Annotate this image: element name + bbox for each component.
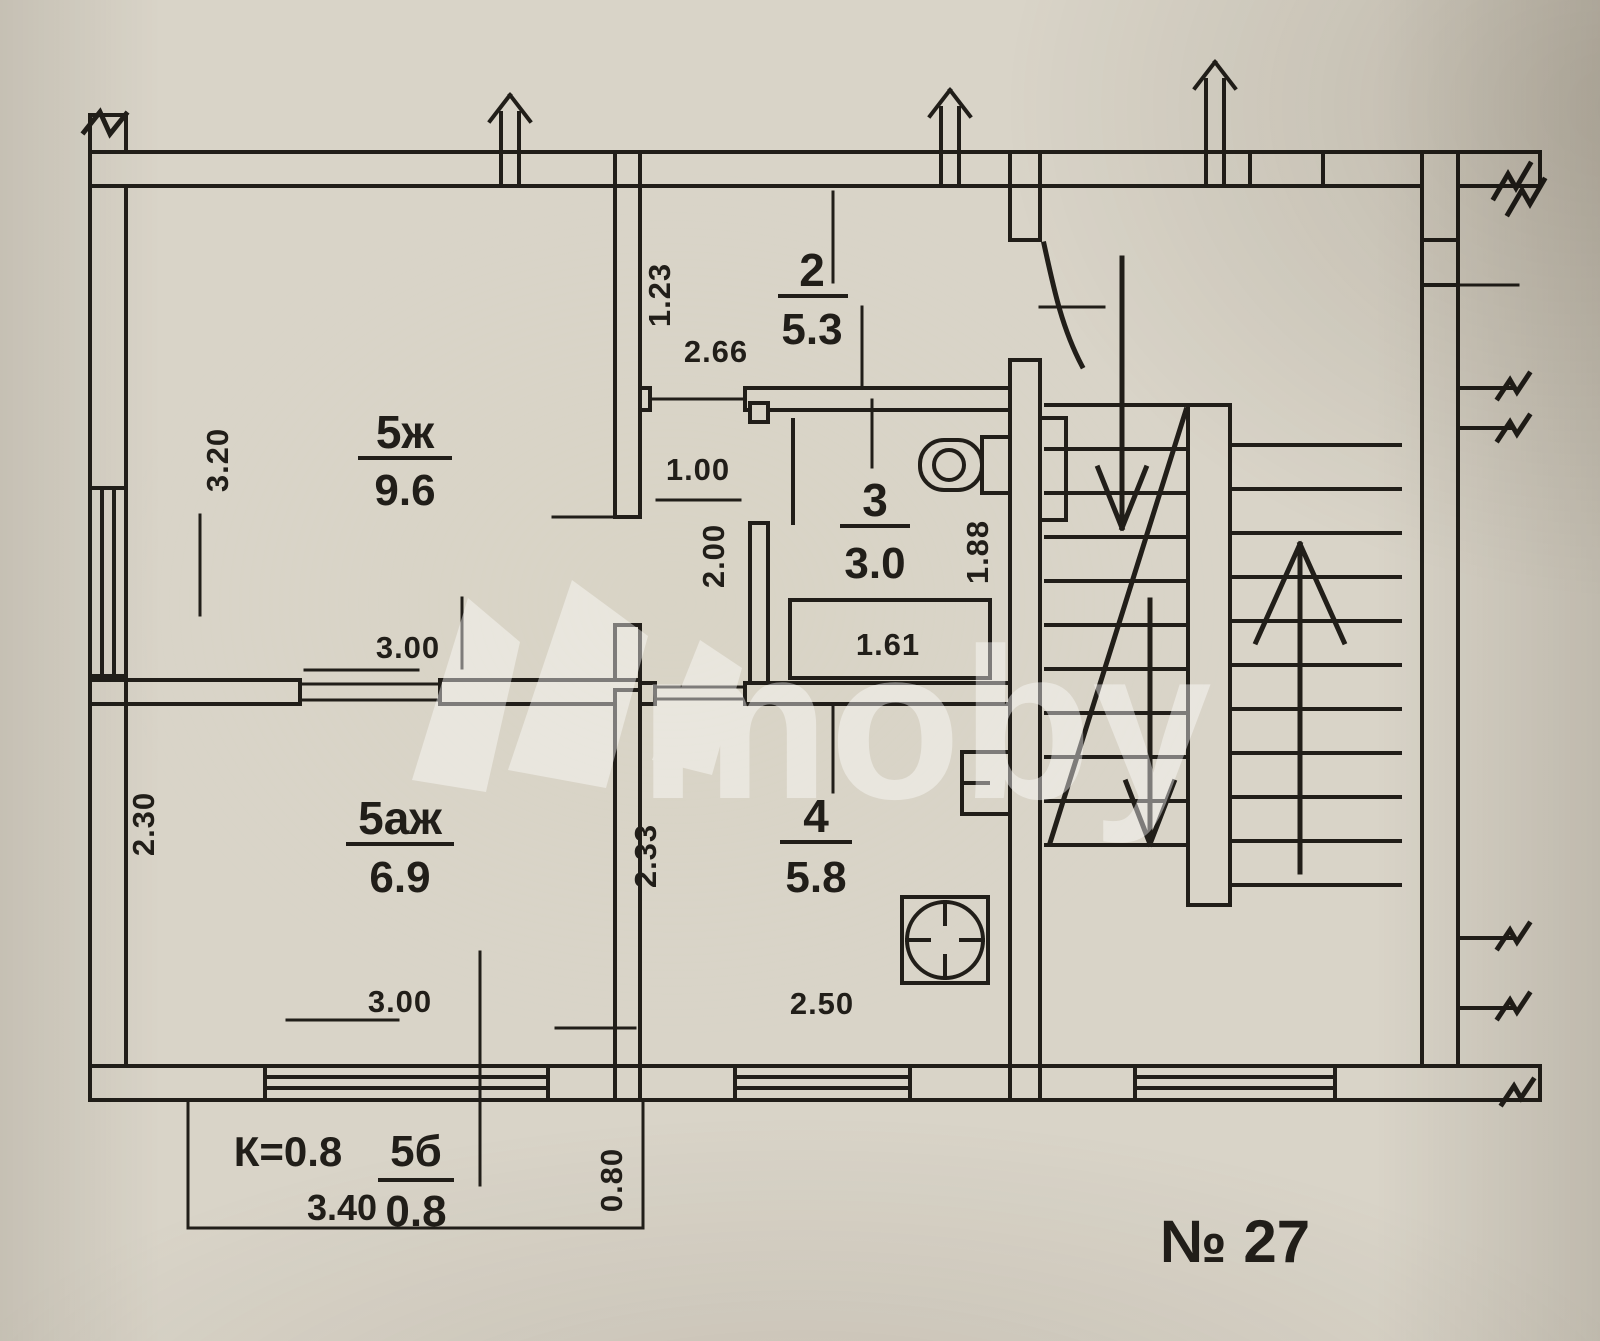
toilet-icon xyxy=(920,437,1010,493)
stove-icon xyxy=(902,897,988,983)
room-kitchen-area: 5.8 xyxy=(785,853,846,902)
stair-treads-right xyxy=(1230,445,1400,885)
room-bath-id: 3 xyxy=(862,474,888,526)
room-balcony-id: 5б xyxy=(390,1127,442,1176)
room-hall-area: 5.3 xyxy=(781,305,842,354)
dim-living-width: 3.20 xyxy=(200,428,235,492)
wall-right xyxy=(1422,152,1458,1100)
balcony-coefficient: К=0.8 xyxy=(234,1128,343,1175)
dim-hall-width: 2.66 xyxy=(684,334,748,369)
floor-plan-drawing: moby 5ж 9.6 2 5.3 3 3.0 4 5.8 5аж 6.9 К=… xyxy=(0,0,1600,1341)
entry-door-leaf xyxy=(1044,244,1082,366)
room-living-id: 5ж xyxy=(376,406,435,458)
stair-down-arrow-1 xyxy=(1098,258,1146,528)
dim-room2-width: 2.30 xyxy=(126,792,161,856)
watermark-text: moby xyxy=(638,603,1211,844)
room-hall-id: 2 xyxy=(799,244,825,296)
floor-plan-scan: moby 5ж 9.6 2 5.3 3 3.0 4 5.8 5аж 6.9 К=… xyxy=(0,0,1600,1341)
dim-hall-height: 1.23 xyxy=(642,263,677,327)
room-bath-area: 3.0 xyxy=(844,539,905,588)
wall-hall-bottom xyxy=(745,388,1010,410)
room-kitchen-id: 4 xyxy=(803,790,829,842)
dim-kitchen-height: 2.33 xyxy=(628,824,663,888)
wall-bottom xyxy=(90,1066,1540,1100)
wall-left xyxy=(90,115,126,1096)
wall-living-corridor-upper xyxy=(615,186,640,517)
room-living-area: 9.6 xyxy=(374,466,435,515)
dim-balcony-depth: 0.80 xyxy=(594,1148,629,1212)
vent-shaft xyxy=(1040,418,1066,520)
room-room2-id: 5аж xyxy=(358,792,442,844)
room-balcony-area: 0.8 xyxy=(385,1187,446,1236)
wall-stairwell-upper xyxy=(1010,186,1040,240)
wall-bath-left-upper xyxy=(750,403,768,422)
dim-balcony-width: 3.40 xyxy=(307,1187,377,1228)
dim-kitchen-width: 2.50 xyxy=(790,986,854,1021)
dim-bathtub-length: 1.61 xyxy=(856,627,920,662)
dim-bath-depth: 1.88 xyxy=(960,520,995,584)
dim-room2-depth: 3.00 xyxy=(368,984,432,1019)
dim-living-depth: 3.00 xyxy=(376,630,440,665)
dim-corridor-width: 1.00 xyxy=(666,452,730,487)
plan-number: № 27 xyxy=(1160,1208,1310,1275)
watermark-logo-shard-1 xyxy=(412,598,520,792)
dim-corridor-depth: 2.00 xyxy=(696,524,731,588)
wall-living-room2-left xyxy=(126,680,300,704)
room-room2-area: 6.9 xyxy=(369,853,430,902)
